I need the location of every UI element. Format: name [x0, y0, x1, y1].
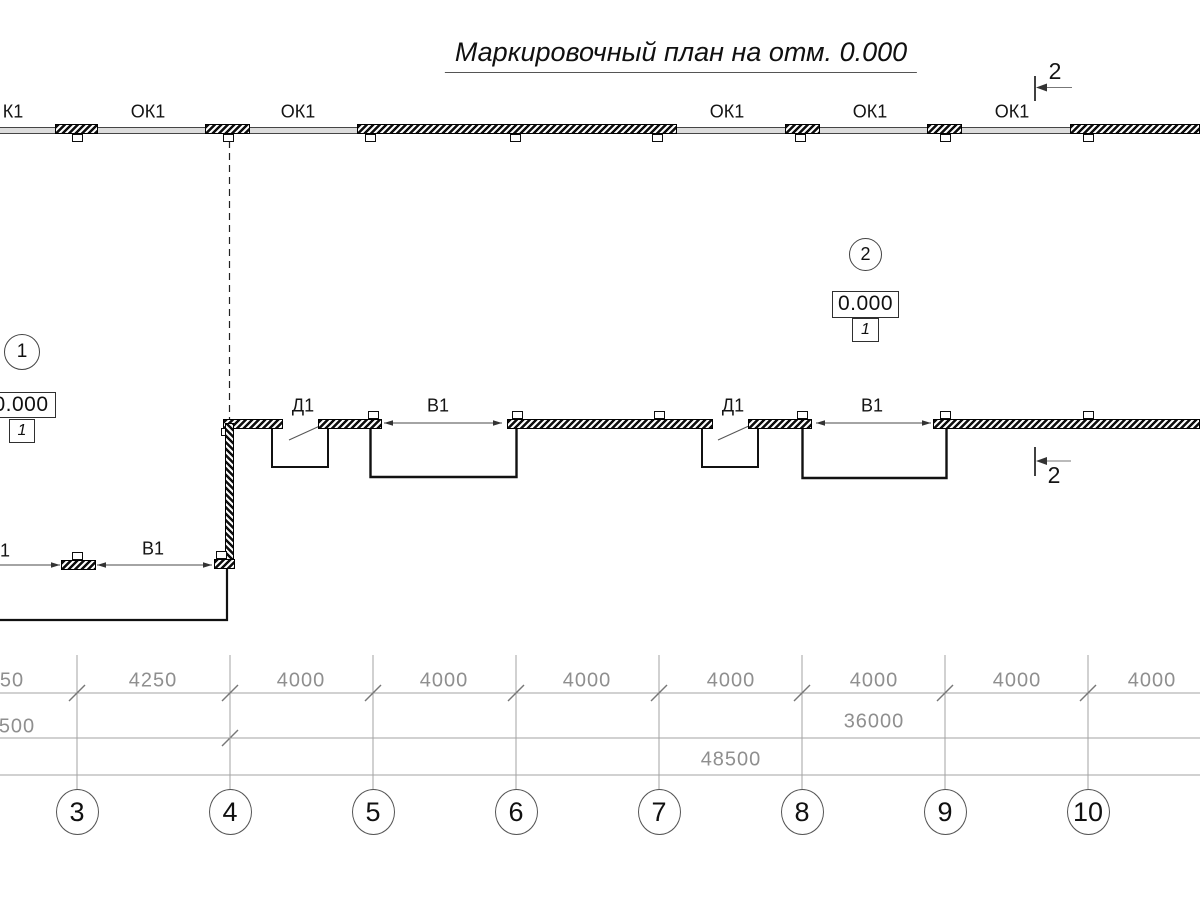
note-box-left: 1 [9, 419, 35, 443]
window-mark [205, 124, 250, 134]
arrowhead [51, 562, 60, 567]
column-mark [365, 134, 376, 142]
dimension-label: 4000 [1128, 670, 1177, 693]
window-mark [55, 124, 98, 134]
column-mark [223, 134, 234, 142]
column-mark [368, 411, 379, 419]
window-mark [785, 124, 820, 134]
wall-segment-vertical [225, 423, 234, 569]
column-mark [512, 411, 523, 419]
window-mark [357, 124, 677, 134]
grid-axis-bubble: 10 [1067, 789, 1110, 835]
drawing-line [803, 429, 947, 478]
section-mark-label-bottom: 2 [1042, 462, 1066, 489]
grid-axis-bubble: 4 [209, 789, 252, 835]
arrowhead [203, 562, 212, 567]
dimension-label: 4250 [129, 670, 178, 693]
gate-type-label: В1 [142, 539, 164, 560]
drawing-line [0, 569, 227, 620]
window-type-label: ОК1 [281, 102, 316, 123]
dimension-label: 4000 [277, 670, 326, 693]
dimension-label: 4000 [707, 670, 756, 693]
page-title: Маркировочный план на отм. 0.000 [445, 37, 917, 73]
window-mark [927, 124, 962, 134]
column-mark [510, 134, 521, 142]
gate-type-label: В1 [427, 396, 449, 417]
gate-label-partial: 1 [0, 541, 10, 562]
dimension-label: 4000 [563, 670, 612, 693]
arrowhead [816, 420, 825, 425]
window-type-label: ОК1 [995, 102, 1030, 123]
window-type-label: ОК1 [710, 102, 745, 123]
dimension-label: 4000 [850, 670, 899, 693]
column-mark [652, 134, 663, 142]
drawing-line [371, 429, 517, 477]
level-bubble-1: 1 [4, 334, 40, 370]
door-type-label: Д1 [292, 396, 314, 417]
arrowhead [384, 420, 393, 425]
column-mark [797, 411, 808, 419]
dimension-label: 50 [0, 670, 24, 693]
column-mark [216, 551, 227, 559]
arrowhead [493, 420, 502, 425]
drawing-canvas: Маркировочный план на отм. 0.000 2 2 1 0… [0, 0, 1200, 900]
window-type-label: ОК1 [853, 102, 888, 123]
wall-segment [933, 419, 1200, 429]
column-mark [654, 411, 665, 419]
window-type-label: ОК1 [131, 102, 166, 123]
grid-axis-bubble: 6 [495, 789, 538, 835]
elevation-box-left: 0.000 [0, 392, 56, 418]
door-type-label: Д1 [722, 396, 744, 417]
column-mark [1083, 411, 1094, 419]
note-box-right: 1 [852, 318, 879, 342]
dimension-label: 4000 [420, 670, 469, 693]
column-mark [795, 134, 806, 142]
grid-axis-bubble: 3 [56, 789, 99, 835]
window-mark [61, 560, 96, 570]
dimension-total-48500: 48500 [701, 749, 762, 772]
column-mark [72, 552, 83, 560]
column-mark [940, 134, 951, 142]
gate-type-label: В1 [861, 396, 883, 417]
dimension-total-36000: 36000 [844, 711, 905, 734]
wall-segment [318, 419, 382, 429]
column-mark [72, 134, 83, 142]
grid-axis-bubble: 7 [638, 789, 681, 835]
level-bubble-2: 2 [849, 238, 882, 271]
section-mark-label-top: 2 [1043, 58, 1067, 85]
grid-axis-bubble: 5 [352, 789, 395, 835]
drawing-line [718, 425, 751, 440]
grid-axis-bubble: 8 [781, 789, 824, 835]
column-mark [940, 411, 951, 419]
dimension-label: 4000 [993, 670, 1042, 693]
dimension-label-partial: 500 [0, 716, 35, 739]
column-mark [1083, 134, 1094, 142]
grid-axis-bubble: 9 [924, 789, 967, 835]
arrowhead [922, 420, 931, 425]
wall-corner [214, 559, 235, 569]
drawing-lines [0, 0, 1200, 900]
window-type-label: К1 [3, 102, 24, 123]
wall-segment [748, 419, 812, 429]
elevation-box-right: 0.000 [832, 291, 899, 318]
arrowhead [97, 562, 106, 567]
window-mark [1070, 124, 1200, 134]
wall-segment [507, 419, 713, 429]
